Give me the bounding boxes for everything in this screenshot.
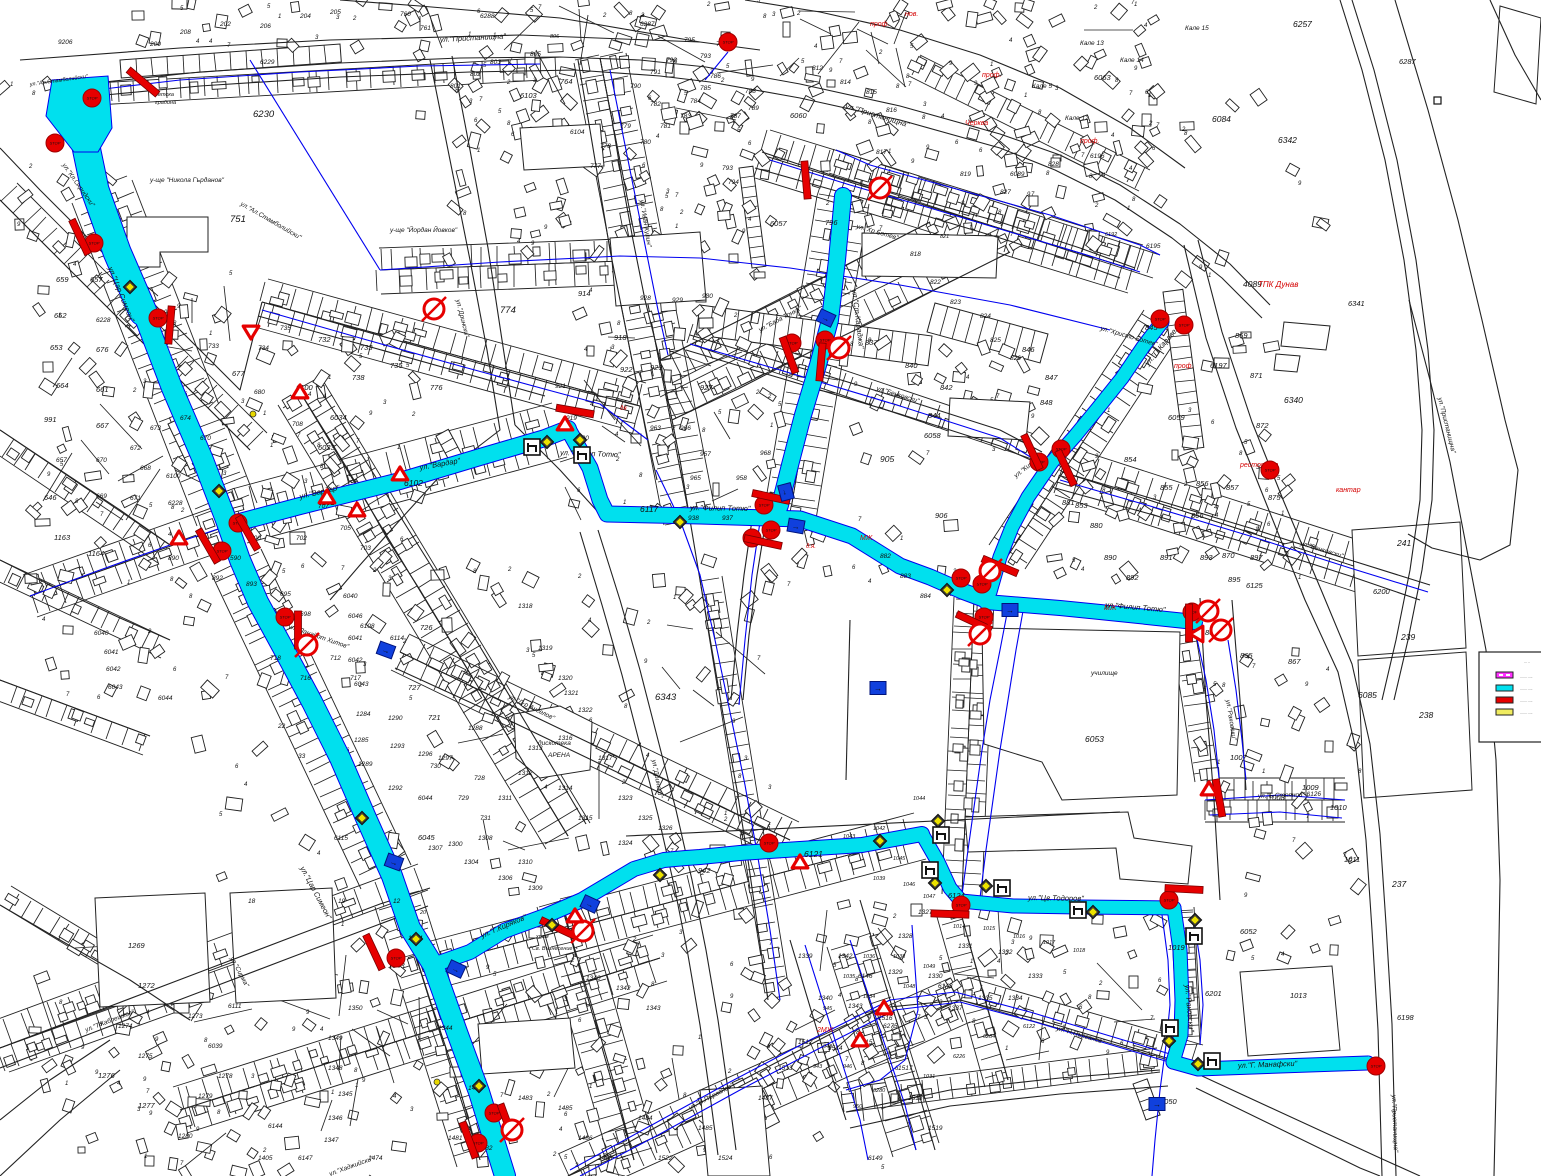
svg-text:659: 659: [56, 275, 69, 284]
svg-text:1: 1: [1298, 575, 1301, 581]
svg-text:6053: 6053: [1085, 734, 1104, 744]
svg-text:653: 653: [50, 343, 63, 352]
svg-text:6287: 6287: [1399, 57, 1417, 66]
svg-text:812: 812: [812, 65, 823, 72]
svg-text:6041: 6041: [348, 635, 363, 642]
svg-text:2: 2: [262, 1148, 267, 1154]
svg-text:790: 790: [630, 83, 641, 90]
svg-text:200: 200: [149, 41, 161, 48]
svg-text:6149: 6149: [868, 1155, 883, 1162]
svg-text:1335: 1335: [978, 995, 993, 1002]
svg-text:1333: 1333: [1028, 973, 1043, 980]
svg-text:6144: 6144: [268, 1123, 283, 1130]
svg-text:870: 870: [1222, 551, 1235, 560]
svg-text:853: 853: [1075, 501, 1088, 510]
svg-text:1014: 1014: [953, 924, 965, 930]
svg-text:1309: 1309: [528, 885, 543, 892]
svg-text:891: 891: [1160, 553, 1173, 562]
svg-text:867: 867: [1288, 657, 1301, 666]
svg-text:667: 667: [96, 421, 109, 430]
svg-text:1284: 1284: [356, 711, 371, 718]
svg-text:1: 1: [397, 445, 400, 451]
svg-text:STOP: STOP: [759, 503, 770, 508]
svg-text:STOP: STOP: [1155, 317, 1166, 322]
svg-text:12: 12: [393, 898, 401, 905]
svg-text:869: 869: [1235, 331, 1248, 340]
svg-text:6034: 6034: [330, 413, 347, 422]
svg-text:1517: 1517: [898, 1065, 913, 1072]
svg-text:1013: 1013: [1290, 991, 1308, 1000]
svg-text:6039: 6039: [208, 1043, 223, 1050]
svg-text:1323: 1323: [618, 795, 633, 802]
svg-text:1332: 1332: [998, 949, 1013, 956]
svg-text:778: 778: [600, 143, 611, 150]
svg-text:2: 2: [602, 13, 607, 19]
svg-text:1: 1: [675, 224, 678, 230]
svg-text:STOP: STOP: [820, 338, 831, 343]
svg-text:1048: 1048: [903, 984, 916, 990]
svg-text:1297: 1297: [438, 755, 453, 762]
svg-text:1276: 1276: [98, 1071, 116, 1080]
svg-text:202: 202: [219, 21, 231, 28]
svg-text:STOP: STOP: [1164, 898, 1175, 903]
svg-text:2: 2: [1148, 121, 1153, 127]
svg-text:791: 791: [650, 69, 661, 76]
svg-text:738: 738: [352, 373, 365, 382]
svg-text:2: 2: [577, 574, 582, 580]
svg-text:6043: 6043: [108, 684, 123, 691]
svg-text:6122: 6122: [1023, 1024, 1035, 1030]
svg-text:6288: 6288: [480, 13, 495, 20]
svg-text:1317: 1317: [598, 755, 613, 762]
svg-text:672: 672: [130, 445, 141, 452]
svg-text:875: 875: [1268, 493, 1281, 502]
svg-text:1: 1: [341, 922, 344, 928]
svg-text:1330: 1330: [928, 973, 943, 980]
svg-text:1015: 1015: [983, 926, 996, 932]
svg-text:890: 890: [168, 555, 179, 562]
svg-text:787: 787: [730, 113, 741, 120]
svg-text:6100: 6100: [166, 473, 181, 480]
svg-text:нов.: нов.: [905, 11, 918, 18]
svg-text:848: 848: [1040, 398, 1053, 407]
svg-text:2: 2: [892, 914, 897, 920]
svg-text:2: 2: [1183, 482, 1188, 488]
svg-text:238: 238: [1418, 710, 1433, 720]
svg-text:STOP: STOP: [391, 956, 402, 961]
svg-text:943: 943: [813, 1064, 823, 1070]
svg-text:6043: 6043: [354, 681, 369, 688]
svg-text:1: 1: [127, 580, 130, 586]
svg-text:1: 1: [328, 375, 331, 381]
svg-text:1034: 1034: [863, 994, 875, 1000]
svg-text:6230: 6230: [253, 109, 275, 120]
svg-text:779: 779: [620, 123, 631, 130]
svg-text:1038: 1038: [893, 954, 906, 960]
svg-text:945: 945: [823, 1006, 833, 1012]
svg-text:840: 840: [905, 361, 918, 370]
svg-text:2: 2: [755, 390, 760, 396]
svg-text:897: 897: [1250, 553, 1263, 562]
svg-text:STOP: STOP: [979, 615, 990, 620]
svg-text:208: 208: [179, 29, 191, 36]
svg-text:6257: 6257: [1293, 19, 1312, 29]
svg-text:837: 837: [865, 338, 878, 347]
svg-text:→: →: [791, 521, 800, 531]
svg-text:782: 782: [650, 101, 661, 108]
svg-text:1296: 1296: [418, 751, 433, 758]
svg-text:1345: 1345: [338, 1091, 353, 1098]
svg-text:991: 991: [44, 415, 57, 424]
svg-text:1325: 1325: [638, 815, 653, 822]
svg-text:968: 968: [760, 450, 771, 457]
svg-text:204: 204: [299, 13, 311, 20]
svg-text:677: 677: [232, 369, 245, 378]
svg-text:6041: 6041: [104, 649, 119, 656]
svg-text:893: 893: [246, 581, 257, 588]
svg-text:948: 948: [823, 1044, 833, 1050]
svg-text:239: 239: [1400, 632, 1415, 642]
svg-text:854: 854: [1124, 455, 1137, 464]
svg-text:814: 814: [840, 79, 851, 86]
svg-text:1272: 1272: [138, 981, 156, 990]
svg-text:857: 857: [1226, 483, 1239, 492]
svg-text:1487: 1487: [758, 1095, 773, 1102]
svg-text:923: 923: [650, 363, 663, 372]
svg-text:1: 1: [1281, 511, 1284, 517]
svg-text:1512: 1512: [798, 1039, 813, 1046]
svg-text:884: 884: [920, 593, 931, 600]
svg-text:780: 780: [640, 139, 651, 146]
svg-text:1342: 1342: [838, 953, 853, 960]
svg-text:1349: 1349: [328, 1035, 343, 1042]
svg-text:1036: 1036: [863, 954, 876, 960]
svg-text:9206: 9206: [58, 39, 73, 46]
svg-text:1: 1: [1262, 769, 1265, 775]
svg-text:→: →: [874, 684, 882, 693]
svg-text:2: 2: [621, 780, 626, 786]
svg-text:Черква: Черква: [965, 120, 988, 127]
svg-text:1: 1: [698, 1035, 701, 1041]
svg-text:STOP: STOP: [489, 1111, 500, 1116]
svg-text:801: 801: [450, 83, 461, 90]
svg-text:1018: 1018: [1073, 948, 1086, 954]
svg-text:1337: 1337: [948, 1005, 963, 1012]
svg-text:у-ще "Йордан Йовков": у-ще "Йордан Йовков": [389, 225, 458, 234]
svg-text:1019: 1019: [1168, 943, 1186, 952]
svg-text:6228: 6228: [96, 317, 111, 324]
svg-text:824: 824: [980, 313, 991, 320]
svg-text:2: 2: [679, 210, 684, 216]
svg-text:1307: 1307: [428, 845, 443, 852]
svg-text:1274: 1274: [118, 1023, 133, 1030]
svg-text:705: 705: [340, 525, 351, 532]
svg-text:937: 937: [722, 515, 733, 522]
svg-text:1513: 1513: [778, 1065, 793, 1072]
svg-text:774: 774: [500, 305, 516, 316]
svg-text:1: 1: [65, 1081, 68, 1087]
svg-text:786: 786: [710, 73, 721, 80]
svg-text:1326: 1326: [658, 825, 673, 832]
svg-text:1035: 1035: [843, 974, 856, 980]
svg-text:1486: 1486: [578, 1135, 593, 1142]
svg-text:2: 2: [28, 164, 33, 170]
svg-text:училище: училище: [1090, 670, 1118, 677]
svg-text:... ..: ... ..: [1524, 660, 1530, 664]
svg-text:695: 695: [280, 591, 291, 598]
svg-text:1269: 1269: [128, 941, 146, 950]
svg-text:6192: 6192: [1105, 232, 1117, 238]
svg-text:2: 2: [733, 313, 738, 319]
svg-text:676: 676: [96, 345, 109, 354]
svg-text:6060: 6060: [790, 111, 808, 120]
svg-text:856: 856: [1196, 479, 1209, 488]
svg-text:STOP: STOP: [87, 96, 98, 101]
svg-text:2: 2: [352, 16, 357, 22]
svg-text:938: 938: [688, 515, 699, 522]
svg-text:6342: 6342: [1278, 135, 1297, 145]
svg-text:1017: 1017: [1043, 940, 1056, 946]
svg-text:893: 893: [1200, 553, 1213, 562]
svg-text:730: 730: [430, 763, 441, 770]
svg-text:817: 817: [876, 149, 887, 156]
svg-text:668: 668: [140, 465, 151, 472]
svg-text:847: 847: [1045, 373, 1058, 382]
svg-text:Кале 15: Кале 15: [1185, 25, 1209, 32]
svg-text:946: 946: [843, 1064, 853, 1070]
svg-text:793: 793: [722, 165, 733, 172]
svg-text:805: 805: [530, 51, 541, 58]
svg-text:6044: 6044: [418, 795, 433, 802]
svg-text:2: 2: [878, 50, 883, 56]
svg-text:2: 2: [180, 508, 185, 514]
svg-text:Кале 5: Кале 5: [1032, 83, 1052, 90]
svg-text:1010: 1010: [1330, 803, 1348, 812]
svg-text:892: 892: [1126, 573, 1139, 582]
svg-text:865: 865: [1240, 651, 1253, 660]
svg-text:657: 657: [90, 275, 103, 284]
svg-text:6059: 6059: [1168, 413, 1186, 422]
svg-text:735: 735: [390, 361, 403, 370]
svg-text:922: 922: [620, 365, 633, 374]
svg-text:1: 1: [477, 148, 480, 154]
svg-text:6121: 6121: [804, 849, 823, 859]
svg-text:1522: 1522: [658, 1155, 673, 1162]
svg-text:815: 815: [866, 89, 877, 96]
svg-text:2: 2: [796, 11, 801, 17]
svg-text:22: 22: [277, 723, 286, 730]
svg-text:1: 1: [888, 149, 891, 155]
svg-text:1047: 1047: [923, 894, 936, 900]
svg-text:751: 751: [230, 214, 246, 225]
svg-text:2: 2: [1093, 5, 1098, 11]
svg-text:1: 1: [1107, 408, 1110, 414]
svg-text:761: 761: [420, 25, 431, 32]
svg-text:1485: 1485: [698, 1125, 713, 1132]
svg-text:1485: 1485: [558, 1105, 573, 1112]
svg-text:802: 802: [470, 71, 481, 78]
svg-text:1300: 1300: [448, 841, 463, 848]
svg-text:826: 826: [1010, 355, 1021, 362]
svg-text:1304: 1304: [464, 859, 479, 866]
svg-text:1: 1: [673, 595, 676, 601]
svg-text:927: 927: [700, 383, 713, 392]
svg-text:STOP: STOP: [217, 549, 228, 554]
svg-text:1289: 1289: [358, 761, 373, 768]
svg-text:2: 2: [507, 567, 512, 573]
svg-text:Кале 13: Кале 13: [1080, 40, 1104, 47]
svg-text:890: 890: [1104, 553, 1117, 562]
svg-text:6340: 6340: [1284, 395, 1303, 405]
svg-text:6084: 6084: [1212, 114, 1231, 124]
svg-text:1277: 1277: [138, 1101, 156, 1110]
svg-text:918: 918: [614, 333, 627, 342]
svg-text:716: 716: [300, 675, 311, 682]
svg-text:STOP: STOP: [956, 903, 967, 908]
svg-text:1324: 1324: [618, 840, 633, 847]
svg-text:2: 2: [767, 394, 772, 400]
svg-text:1163: 1163: [54, 533, 71, 542]
svg-text:6226: 6226: [953, 1054, 966, 1060]
svg-text:1339: 1339: [798, 953, 813, 960]
svg-text:2: 2: [723, 817, 728, 823]
svg-text:905: 905: [880, 454, 894, 464]
svg-text:827: 827: [1000, 189, 1011, 196]
svg-text:2: 2: [727, 1069, 732, 1075]
svg-text:726: 726: [420, 623, 433, 632]
svg-text:2: 2: [570, 958, 575, 964]
svg-text:1516: 1516: [878, 1015, 893, 1022]
svg-text:2: 2: [411, 412, 416, 418]
svg-text:6108: 6108: [360, 623, 375, 630]
svg-text:6063: 6063: [1094, 73, 1112, 82]
svg-text:792: 792: [666, 57, 677, 64]
svg-text:721: 721: [428, 713, 441, 722]
svg-text:д.я.: д.я.: [806, 544, 816, 550]
svg-text:у-ще "Никола Гърданов": у-ще "Никола Гърданов": [149, 176, 225, 184]
svg-text:1314: 1314: [558, 785, 573, 792]
svg-text:6111: 6111: [228, 1003, 242, 1010]
svg-text:1343: 1343: [646, 1005, 661, 1012]
svg-text:1344: 1344: [438, 1025, 453, 1032]
svg-text:702: 702: [296, 535, 307, 542]
svg-text:1: 1: [1148, 93, 1151, 99]
svg-text:1275: 1275: [138, 1053, 153, 1060]
svg-text:1483: 1483: [518, 1095, 533, 1102]
svg-text:2: 2: [1098, 981, 1103, 987]
svg-text:STOP: STOP: [89, 241, 100, 246]
svg-text:1: 1: [623, 500, 626, 506]
svg-text:1: 1: [1024, 93, 1027, 99]
svg-text:1278: 1278: [218, 1073, 233, 1080]
svg-text:958: 958: [736, 475, 747, 482]
svg-text:895: 895: [1228, 575, 1241, 584]
svg-text:731: 731: [480, 815, 491, 822]
svg-text:733: 733: [360, 343, 373, 352]
svg-text:2: 2: [546, 1092, 551, 1098]
svg-text:Кале 12: Кале 12: [1065, 115, 1089, 122]
svg-text:728: 728: [474, 775, 485, 782]
svg-text:6229: 6229: [260, 59, 275, 66]
svg-text:822: 822: [930, 279, 941, 286]
svg-text:1524: 1524: [718, 1155, 733, 1162]
svg-text:657: 657: [56, 457, 67, 464]
svg-text:1292: 1292: [388, 785, 403, 792]
svg-text:1328: 1328: [898, 933, 913, 940]
svg-text:928: 928: [640, 295, 651, 302]
svg-text:1488: 1488: [598, 1155, 613, 1162]
svg-text:872: 872: [1256, 421, 1269, 430]
svg-text:777: 777: [590, 163, 601, 170]
svg-text:6343: 6343: [655, 692, 677, 703]
svg-text:823: 823: [950, 299, 961, 306]
svg-text:1311: 1311: [498, 795, 512, 802]
svg-text:6103: 6103: [520, 91, 538, 100]
svg-text:1340: 1340: [586, 975, 601, 982]
svg-text:1329: 1329: [888, 969, 903, 976]
svg-text:1340: 1340: [818, 995, 833, 1002]
svg-text:STOP: STOP: [766, 528, 777, 533]
svg-text:1310: 1310: [518, 859, 533, 866]
svg-text:проф.: проф.: [1080, 138, 1099, 145]
svg-text:963: 963: [650, 425, 661, 432]
svg-text:1044: 1044: [913, 796, 925, 802]
svg-text:"Св. Възнесение": "Св. Възнесение": [530, 946, 575, 952]
svg-text:906: 906: [935, 511, 948, 520]
svg-text:673: 673: [150, 425, 161, 432]
svg-text:842: 842: [940, 383, 953, 392]
svg-text:703: 703: [360, 545, 371, 552]
svg-text:871: 871: [1250, 371, 1263, 380]
svg-text:6042: 6042: [348, 657, 363, 664]
svg-text:2: 2: [372, 568, 377, 574]
svg-text:2: 2: [506, 80, 511, 86]
svg-text:6042: 6042: [106, 666, 121, 673]
svg-text:АРЕНА: АРЕНА: [547, 752, 570, 759]
svg-text:764: 764: [560, 77, 573, 86]
svg-text:828: 828: [1048, 161, 1059, 168]
svg-text:1: 1: [209, 331, 212, 337]
svg-text:1: 1: [990, 62, 993, 68]
svg-text:930: 930: [702, 293, 713, 300]
svg-text:796: 796: [825, 218, 838, 227]
svg-text:1322: 1322: [578, 707, 593, 714]
svg-text:6148: 6148: [938, 983, 953, 990]
svg-text:781: 781: [660, 123, 671, 130]
svg-text:729: 729: [458, 795, 469, 802]
svg-text:2: 2: [1094, 203, 1099, 209]
svg-text:1334: 1334: [1008, 995, 1023, 1002]
svg-text:1350: 1350: [348, 1005, 363, 1012]
svg-text:градина: градина: [155, 100, 176, 106]
svg-text:844: 844: [928, 411, 941, 420]
svg-text:....... .....: ....... .....: [1520, 687, 1533, 691]
svg-text:6195: 6195: [1146, 243, 1161, 250]
svg-text:1348: 1348: [328, 1065, 343, 1072]
svg-text:6045: 6045: [418, 833, 436, 842]
svg-text:892: 892: [212, 575, 223, 582]
svg-text:1481: 1481: [448, 1135, 463, 1142]
svg-text:1347: 1347: [324, 1137, 339, 1144]
svg-text:6198: 6198: [1397, 1013, 1415, 1022]
svg-text:6196: 6196: [1090, 153, 1105, 160]
svg-text:966: 966: [680, 425, 691, 432]
svg-text:880: 880: [1090, 521, 1103, 530]
svg-text:1405: 1405: [258, 1155, 273, 1162]
svg-text:776: 776: [430, 383, 443, 392]
svg-text:241: 241: [1396, 538, 1411, 548]
svg-text:храм: храм: [535, 934, 549, 940]
